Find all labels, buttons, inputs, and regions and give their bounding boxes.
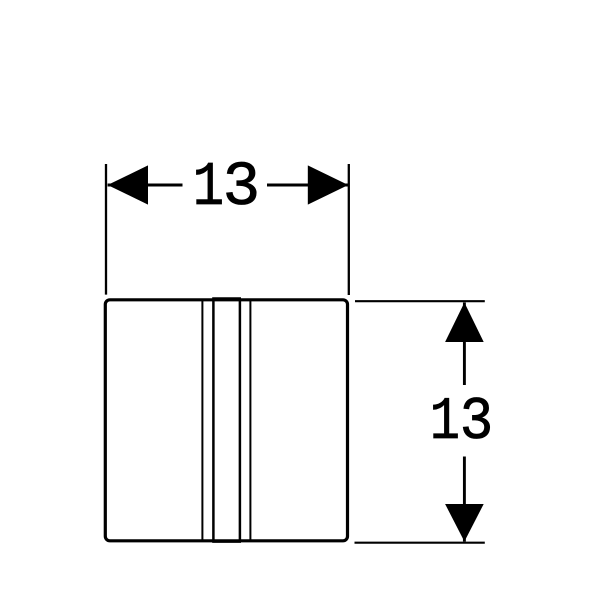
svg-text:3: 3 [223, 152, 261, 223]
svg-text:1: 1 [193, 153, 225, 223]
svg-text:3: 3 [460, 390, 493, 457]
svg-text:1: 1 [430, 388, 460, 456]
